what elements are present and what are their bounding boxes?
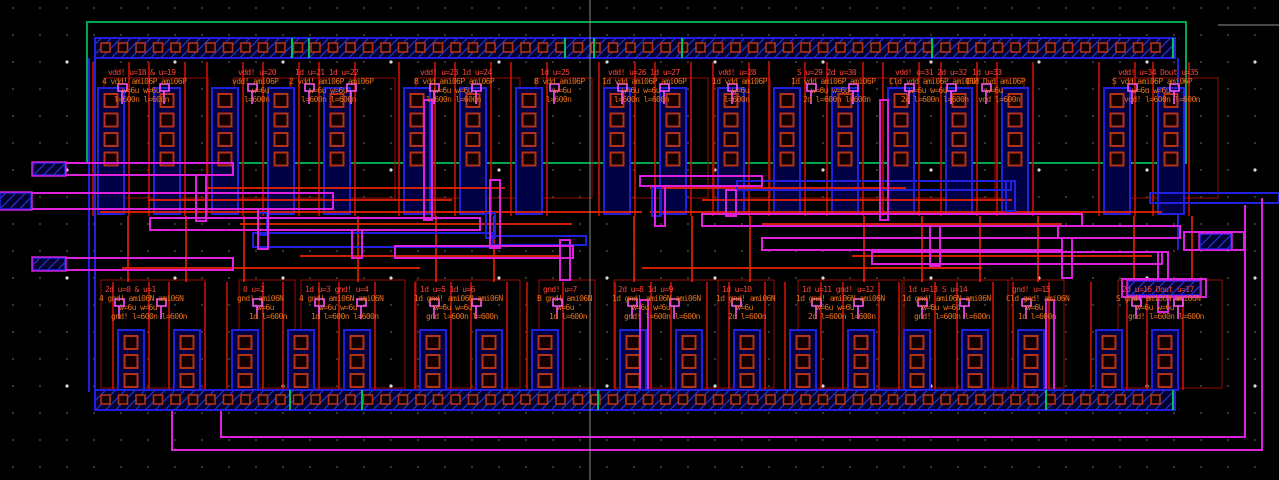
device-label-line[interactable]: 1d u=11 gnd! u=12 xyxy=(802,285,874,294)
contact-via[interactable] xyxy=(411,94,424,107)
contact-via[interactable] xyxy=(1165,133,1178,146)
contact-via[interactable] xyxy=(483,374,496,387)
contact-via[interactable] xyxy=(351,355,364,368)
contact-via[interactable] xyxy=(523,94,536,107)
rail-contact-via[interactable] xyxy=(994,43,1003,52)
device-label-line[interactable]: 1d u=5 1d u=6 xyxy=(420,285,476,294)
device-label-line[interactable]: 1d u=25 xyxy=(540,68,570,77)
contact-via[interactable] xyxy=(219,114,232,127)
output-pin-1[interactable] xyxy=(1200,234,1231,249)
rail-contact-via[interactable] xyxy=(941,395,950,404)
contact-via[interactable] xyxy=(1009,133,1022,146)
device-label-line[interactable]: gnd! l=600n l=600n xyxy=(1128,312,1205,321)
rail-contact-via[interactable] xyxy=(556,43,565,52)
rail-contact-via[interactable] xyxy=(1011,43,1020,52)
contact-via[interactable] xyxy=(611,153,624,166)
device-label-line[interactable]: vdd! u=31 2d u=32 xyxy=(895,68,967,77)
input-pin-3[interactable] xyxy=(33,258,65,270)
device-label-line[interactable]: B vdd ami06P xyxy=(534,77,585,86)
rail-contact-via[interactable] xyxy=(539,43,548,52)
rail-contact-via[interactable] xyxy=(504,43,513,52)
contact-via[interactable] xyxy=(125,336,138,349)
device-label-line[interactable]: 1d u=13 S u=14 xyxy=(908,285,968,294)
device-label-line[interactable]: vdd! ami06P xyxy=(232,77,279,86)
rail-contact-via[interactable] xyxy=(154,43,163,52)
rail-contact-via[interactable] xyxy=(784,43,793,52)
contact-via[interactable] xyxy=(969,355,982,368)
rail-contact-via[interactable] xyxy=(259,395,268,404)
rail-contact-via[interactable] xyxy=(609,43,618,52)
contact-via[interactable] xyxy=(667,153,680,166)
rail-contact-via[interactable] xyxy=(416,395,425,404)
contact-via[interactable] xyxy=(523,133,536,146)
contact-via[interactable] xyxy=(969,374,982,387)
contact-via[interactable] xyxy=(1165,114,1178,127)
rail-contact-via[interactable] xyxy=(399,395,408,404)
device-label-line[interactable]: w=6u w=6u xyxy=(1136,303,1175,312)
rail-contact-via[interactable] xyxy=(1029,43,1038,52)
device-label-line[interactable]: gnd! l=600n l=600n xyxy=(914,312,991,321)
rail-contact-via[interactable] xyxy=(976,43,985,52)
rail-contact-via[interactable] xyxy=(154,395,163,404)
rail-contact-via[interactable] xyxy=(626,395,635,404)
device-label-line[interactable]: w=6u w=6u xyxy=(319,303,358,312)
rail-contact-via[interactable] xyxy=(101,395,110,404)
contact-via[interactable] xyxy=(1103,374,1116,387)
device-label-line[interactable]: vdd! u=34 Dout u=35 xyxy=(1118,68,1199,77)
rail-contact-via[interactable] xyxy=(364,395,373,404)
contact-via[interactable] xyxy=(969,336,982,349)
device-label-line[interactable]: w=6u w=6u xyxy=(119,303,158,312)
contact-via[interactable] xyxy=(467,114,480,127)
contact-via[interactable] xyxy=(523,153,536,166)
device-label-line[interactable]: w=6u w=6u xyxy=(434,303,473,312)
contact-via[interactable] xyxy=(467,133,480,146)
contact-via[interactable] xyxy=(1111,133,1124,146)
device-label-line[interactable]: gnd! l=600n l=600n xyxy=(111,312,188,321)
rail-contact-via[interactable] xyxy=(486,395,495,404)
contact-via[interactable] xyxy=(105,114,118,127)
contact-via[interactable] xyxy=(295,374,308,387)
rail-contact-via[interactable] xyxy=(836,43,845,52)
device-label-line[interactable]: w=6u w=6u xyxy=(309,86,348,95)
device-label-line[interactable]: 1d u=21 1d u=22 xyxy=(295,68,359,77)
device-label-line[interactable]: 2d l=600n xyxy=(728,312,767,321)
rail-contact-via[interactable] xyxy=(224,43,233,52)
contact-via[interactable] xyxy=(1009,153,1022,166)
contact-via[interactable] xyxy=(483,336,496,349)
device-label-line[interactable]: 1d gnd! ami06N xyxy=(716,294,776,303)
contact-via[interactable] xyxy=(239,336,252,349)
contact-via[interactable] xyxy=(953,114,966,127)
device-label-line[interactable]: 2d u=8 1d u=9 xyxy=(618,285,674,294)
rail-contact-via[interactable] xyxy=(661,43,670,52)
contact-via[interactable] xyxy=(627,374,640,387)
device-label-line[interactable]: l=600n l=600n xyxy=(614,95,670,104)
device-label-line[interactable]: w=6u w=6u xyxy=(811,86,850,95)
rail-contact-via[interactable] xyxy=(241,395,250,404)
contact-via[interactable] xyxy=(725,153,738,166)
contact-via[interactable] xyxy=(1103,336,1116,349)
device-label-line[interactable]: gnd! ami06N xyxy=(237,294,284,303)
contact-via[interactable] xyxy=(741,336,754,349)
contact-via[interactable] xyxy=(781,94,794,107)
device-label-line[interactable]: S vdd ami06P ami06P xyxy=(1112,77,1193,86)
device-label-line[interactable]: B vdd ami06P ami06P xyxy=(414,77,495,86)
contact-via[interactable] xyxy=(781,133,794,146)
rail-contact-via[interactable] xyxy=(1011,395,1020,404)
rail-contact-via[interactable] xyxy=(434,395,443,404)
device-label-line[interactable]: gnd! u=7 xyxy=(543,285,578,294)
device-label-line[interactable]: w=6u xyxy=(557,303,575,312)
contact-via[interactable] xyxy=(1111,94,1124,107)
device-label-line[interactable]: l=600n xyxy=(724,95,750,104)
rail-contact-via[interactable] xyxy=(836,395,845,404)
rail-contact-via[interactable] xyxy=(1081,395,1090,404)
contact-via[interactable] xyxy=(275,133,288,146)
device-label-line[interactable]: w=6u w=6u xyxy=(622,86,661,95)
contact-via[interactable] xyxy=(539,355,552,368)
contact-via[interactable] xyxy=(181,336,194,349)
device-label-line[interactable]: l=600n l=600n xyxy=(426,95,482,104)
rail-contact-via[interactable] xyxy=(644,395,653,404)
rail-contact-via[interactable] xyxy=(749,395,758,404)
rail-contact-via[interactable] xyxy=(1064,43,1073,52)
rail-contact-via[interactable] xyxy=(539,395,548,404)
rail-contact-via[interactable] xyxy=(801,395,810,404)
device-label-line[interactable]: 1d gnd! ami06N ami06N xyxy=(796,294,885,303)
contact-via[interactable] xyxy=(855,355,868,368)
rail-contact-via[interactable] xyxy=(276,395,285,404)
device-label-line[interactable]: vdd! u=28 xyxy=(718,68,757,77)
device-label-line[interactable]: 1d l=600n xyxy=(249,312,288,321)
rail-contact-via[interactable] xyxy=(1046,395,1055,404)
contact-via[interactable] xyxy=(953,153,966,166)
device-label-line[interactable]: l=600n l=600n xyxy=(114,95,170,104)
contact-via[interactable] xyxy=(331,133,344,146)
rail-contact-via[interactable] xyxy=(784,395,793,404)
contact-via[interactable] xyxy=(427,355,440,368)
rail-contact-via[interactable] xyxy=(959,395,968,404)
rail-contact-via[interactable] xyxy=(1099,43,1108,52)
rail-contact-via[interactable] xyxy=(731,43,740,52)
device-label-line[interactable]: 4 gnd! ami06N ami06N xyxy=(99,294,184,303)
rail-contact-via[interactable] xyxy=(1151,43,1160,52)
contact-via[interactable] xyxy=(797,336,810,349)
device-label-line[interactable]: 4 vdd! ami06P ami06P xyxy=(102,77,187,86)
contact-via[interactable] xyxy=(1103,355,1116,368)
device-label-line[interactable]: w=6u w=6u xyxy=(434,86,473,95)
contact-via[interactable] xyxy=(1159,336,1172,349)
device-label-line[interactable]: vdd! u=20 xyxy=(238,68,277,77)
device-label-line[interactable]: w=6u w=6u xyxy=(632,303,671,312)
contact-via[interactable] xyxy=(895,153,908,166)
rail-contact-via[interactable] xyxy=(276,43,285,52)
device-label-line[interactable]: l=600n l=600n xyxy=(301,95,357,104)
contact-via[interactable] xyxy=(411,153,424,166)
contact-via[interactable] xyxy=(683,374,696,387)
contact-via[interactable] xyxy=(611,133,624,146)
rail-contact-via[interactable] xyxy=(766,395,775,404)
contact-via[interactable] xyxy=(855,336,868,349)
rail-contact-via[interactable] xyxy=(364,43,373,52)
contact-via[interactable] xyxy=(105,133,118,146)
rail-contact-via[interactable] xyxy=(661,395,670,404)
device-label-line[interactable]: 1d u=10 xyxy=(722,285,752,294)
rail-contact-via[interactable] xyxy=(1116,395,1125,404)
contact-via[interactable] xyxy=(331,153,344,166)
contact-via[interactable] xyxy=(161,133,174,146)
rail-contact-via[interactable] xyxy=(906,43,915,52)
rail-contact-via[interactable] xyxy=(696,395,705,404)
rail-contact-via[interactable] xyxy=(714,395,723,404)
contact-via[interactable] xyxy=(331,114,344,127)
input-pin-1[interactable] xyxy=(33,163,65,175)
rail-contact-via[interactable] xyxy=(574,43,583,52)
rail-contact-via[interactable] xyxy=(434,43,443,52)
contact-via[interactable] xyxy=(239,374,252,387)
device-label-line[interactable]: 1d gnd! ami06N ami06N xyxy=(902,294,991,303)
rail-contact-via[interactable] xyxy=(889,395,898,404)
rail-contact-via[interactable] xyxy=(871,395,880,404)
contact-via[interactable] xyxy=(483,355,496,368)
contact-via[interactable] xyxy=(911,336,924,349)
device-label-line[interactable]: 1d vdd ami06P xyxy=(712,77,768,86)
contact-via[interactable] xyxy=(1025,374,1038,387)
rail-contact-via[interactable] xyxy=(294,43,303,52)
contact-via[interactable] xyxy=(741,355,754,368)
rail-contact-via[interactable] xyxy=(731,395,740,404)
rail-contact-via[interactable] xyxy=(381,395,390,404)
contact-via[interactable] xyxy=(895,133,908,146)
device-label-line[interactable]: l=600n xyxy=(244,95,270,104)
contact-via[interactable] xyxy=(683,336,696,349)
device-label-line[interactable]: w=6u xyxy=(554,86,572,95)
rail-contact-via[interactable] xyxy=(871,43,880,52)
input-pin-2[interactable] xyxy=(0,193,31,209)
rail-contact-via[interactable] xyxy=(206,43,215,52)
device-label-line[interactable]: gnd! l=600n l=600n xyxy=(624,312,701,321)
rail-contact-via[interactable] xyxy=(136,395,145,404)
contact-via[interactable] xyxy=(427,336,440,349)
contact-via[interactable] xyxy=(1111,153,1124,166)
device-label-line[interactable]: w=6u xyxy=(257,303,275,312)
device-label-line[interactable]: w=6u w=6u xyxy=(909,86,948,95)
device-label-line[interactable]: w=6u xyxy=(1026,303,1044,312)
contact-via[interactable] xyxy=(539,374,552,387)
rail-contact-via[interactable] xyxy=(959,43,968,52)
rail-contact-via[interactable] xyxy=(941,43,950,52)
rail-contact-via[interactable] xyxy=(399,43,408,52)
rail-contact-via[interactable] xyxy=(994,395,1003,404)
device-label-line[interactable]: w=6u xyxy=(736,303,754,312)
rail-contact-via[interactable] xyxy=(206,395,215,404)
contact-via[interactable] xyxy=(295,355,308,368)
rail-contact-via[interactable] xyxy=(1116,43,1125,52)
device-label-line[interactable]: w=6u w=6u xyxy=(122,86,161,95)
contact-via[interactable] xyxy=(351,374,364,387)
device-label-line[interactable]: 2d u=0 & u=1 xyxy=(105,285,156,294)
contact-via[interactable] xyxy=(275,114,288,127)
contact-via[interactable] xyxy=(275,94,288,107)
rail-contact-via[interactable] xyxy=(346,395,355,404)
contact-via[interactable] xyxy=(781,153,794,166)
contact-via[interactable] xyxy=(161,114,174,127)
device-label-line[interactable]: gnd! u=15 xyxy=(1012,285,1051,294)
device-label-line[interactable]: vdd! u=23 1d u=24 xyxy=(420,68,492,77)
device-label-line[interactable]: 1d gnd! ami06N ami06N xyxy=(612,294,701,303)
rail-contact-via[interactable] xyxy=(294,395,303,404)
contact-via[interactable] xyxy=(219,94,232,107)
layout-canvas[interactable]: vdd! u=18 & u=194 vdd! ami06P ami06Pw=6u… xyxy=(0,0,1279,480)
contact-via[interactable] xyxy=(219,133,232,146)
contact-via[interactable] xyxy=(839,114,852,127)
device-label-line[interactable]: 4 gnd! ami06N ami06N xyxy=(299,294,384,303)
rail-contact-via[interactable] xyxy=(679,395,688,404)
contact-via[interactable] xyxy=(627,355,640,368)
rail-contact-via[interactable] xyxy=(1099,395,1108,404)
device-label-line[interactable]: S u=29 2d u=30 xyxy=(797,68,857,77)
contact-via[interactable] xyxy=(125,374,138,387)
rail-contact-via[interactable] xyxy=(556,395,565,404)
contact-via[interactable] xyxy=(181,374,194,387)
rail-contact-via[interactable] xyxy=(119,395,128,404)
rail-contact-via[interactable] xyxy=(311,395,320,404)
device-label-line[interactable]: vdd l=600n xyxy=(978,95,1021,104)
rail-contact-via[interactable] xyxy=(259,43,268,52)
rail-contact-via[interactable] xyxy=(416,43,425,52)
device-label-line[interactable]: 1d vdd ami06P ami06P xyxy=(791,77,876,86)
contact-via[interactable] xyxy=(741,374,754,387)
contact-via[interactable] xyxy=(667,133,680,146)
contact-via[interactable] xyxy=(275,153,288,166)
contact-via[interactable] xyxy=(1159,355,1172,368)
device-label-line[interactable]: 1d l=600n l=600n xyxy=(311,312,379,321)
rail-contact-via[interactable] xyxy=(574,395,583,404)
device-label-line[interactable]: Cld Dvd ami06P xyxy=(966,77,1026,86)
rail-contact-via[interactable] xyxy=(346,43,355,52)
rail-contact-via[interactable] xyxy=(329,395,338,404)
rail-contact-via[interactable] xyxy=(906,395,915,404)
contact-via[interactable] xyxy=(411,114,424,127)
rail-contact-via[interactable] xyxy=(241,43,250,52)
device-label-line[interactable]: w=6u xyxy=(252,86,270,95)
rail-contact-via[interactable] xyxy=(819,43,828,52)
rail-contact-via[interactable] xyxy=(1134,395,1143,404)
rail-contact-via[interactable] xyxy=(1081,43,1090,52)
rail-contact-via[interactable] xyxy=(1064,395,1073,404)
rail-contact-via[interactable] xyxy=(469,43,478,52)
rail-contact-via[interactable] xyxy=(469,395,478,404)
device-label-line[interactable]: S gnd! ami06N ami06N xyxy=(1116,294,1201,303)
rail-contact-via[interactable] xyxy=(486,43,495,52)
rail-contact-via[interactable] xyxy=(311,43,320,52)
contact-via[interactable] xyxy=(125,355,138,368)
device-label-line[interactable]: 2d l=600n l=600n xyxy=(803,95,871,104)
device-label-line[interactable]: l=600n xyxy=(546,95,572,104)
rail-contact-via[interactable] xyxy=(521,43,530,52)
contact-via[interactable] xyxy=(683,355,696,368)
device-label-line[interactable]: 2 vdd! ami06P ami06P xyxy=(289,77,374,86)
contact-via[interactable] xyxy=(627,336,640,349)
device-label-line[interactable]: vdd! l=600n l=600n xyxy=(1124,95,1201,104)
rail-contact-via[interactable] xyxy=(189,395,198,404)
rail-contact-via[interactable] xyxy=(101,43,110,52)
contact-via[interactable] xyxy=(1165,153,1178,166)
contact-via[interactable] xyxy=(539,336,552,349)
contact-via[interactable] xyxy=(351,336,364,349)
rail-contact-via[interactable] xyxy=(696,43,705,52)
contact-via[interactable] xyxy=(797,374,810,387)
rail-contact-via[interactable] xyxy=(136,43,145,52)
rail-contact-via[interactable] xyxy=(854,395,863,404)
contact-via[interactable] xyxy=(239,355,252,368)
rail-contact-via[interactable] xyxy=(1046,43,1055,52)
contact-via[interactable] xyxy=(1009,114,1022,127)
contact-via[interactable] xyxy=(1111,114,1124,127)
contact-via[interactable] xyxy=(667,114,680,127)
rail-contact-via[interactable] xyxy=(171,43,180,52)
device-label-line[interactable]: 1d vdd ami06P ami06P xyxy=(602,77,687,86)
device-label-line[interactable]: vdd! u=18 & u=19 xyxy=(108,68,176,77)
contact-via[interactable] xyxy=(855,374,868,387)
device-label-line[interactable]: w=6u w=6u xyxy=(922,303,961,312)
contact-via[interactable] xyxy=(911,374,924,387)
device-label-line[interactable]: w=6u xyxy=(986,86,1004,95)
rail-contact-via[interactable] xyxy=(854,43,863,52)
contact-via[interactable] xyxy=(181,355,194,368)
contact-via[interactable] xyxy=(1025,336,1038,349)
rail-contact-via[interactable] xyxy=(819,395,828,404)
rail-contact-via[interactable] xyxy=(224,395,233,404)
device-label-line[interactable]: Cld gnd! ami06N xyxy=(1006,294,1070,303)
device-label-line[interactable]: 1d gnd! ami06N ami06N xyxy=(414,294,503,303)
device-label-line[interactable]: w=6u w=6u xyxy=(816,303,855,312)
device-label-line[interactable]: vdd! u=26 1d u=27 xyxy=(608,68,680,77)
contact-via[interactable] xyxy=(1025,355,1038,368)
rail-contact-via[interactable] xyxy=(644,43,653,52)
rail-contact-via[interactable] xyxy=(714,43,723,52)
contact-via[interactable] xyxy=(523,114,536,127)
contact-via[interactable] xyxy=(839,133,852,146)
contact-via[interactable] xyxy=(725,133,738,146)
rail-contact-via[interactable] xyxy=(521,395,530,404)
contact-via[interactable] xyxy=(725,114,738,127)
device-label-line[interactable]: 1d u=3 gnd! u=4 xyxy=(305,285,369,294)
device-label-line[interactable]: gnd l=600n l=600n xyxy=(426,312,498,321)
rail-contact-via[interactable] xyxy=(171,395,180,404)
rail-contact-via[interactable] xyxy=(889,43,898,52)
contact-via[interactable] xyxy=(611,114,624,127)
device-label-line[interactable]: 1d u=33 xyxy=(972,68,1002,77)
rail-contact-via[interactable] xyxy=(1151,395,1160,404)
canvas-content[interactable]: vdd! u=18 & u=194 vdd! ami06P ami06Pw=6u… xyxy=(0,0,1279,480)
rail-contact-via[interactable] xyxy=(766,43,775,52)
rail-contact-via[interactable] xyxy=(504,395,513,404)
contact-via[interactable] xyxy=(1159,374,1172,387)
rail-contact-via[interactable] xyxy=(591,43,600,52)
contact-via[interactable] xyxy=(797,355,810,368)
device-label-line[interactable]: 1d l=600n xyxy=(549,312,588,321)
rail-contact-via[interactable] xyxy=(119,43,128,52)
device-label-line[interactable]: B gnd! ami06N xyxy=(537,294,593,303)
device-label-line[interactable]: Cld vdd ami06P ami06P xyxy=(889,77,978,86)
device-label-line[interactable]: 0 u=2 xyxy=(243,285,265,294)
contact-via[interactable] xyxy=(467,153,480,166)
device-label-line[interactable]: 1d l=600n xyxy=(1018,312,1057,321)
rail-contact-via[interactable] xyxy=(609,395,618,404)
device-label-line[interactable]: w=6u xyxy=(732,86,750,95)
